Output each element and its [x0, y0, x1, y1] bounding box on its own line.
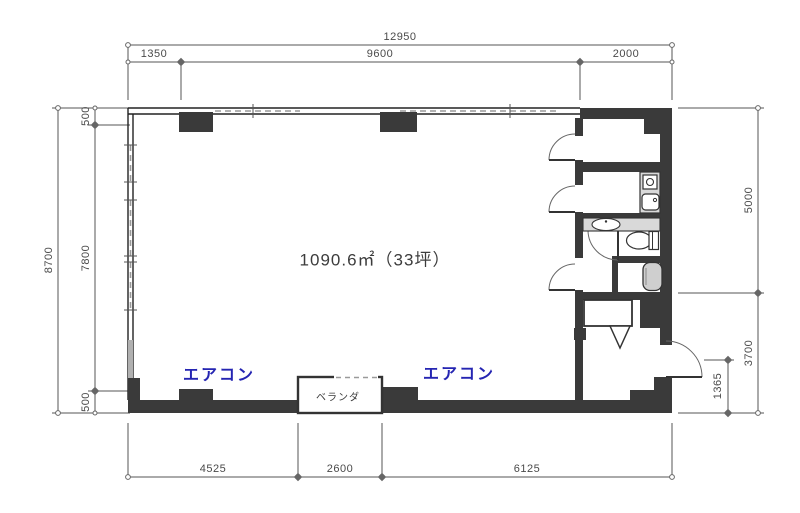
dim-top-total: 12950	[383, 31, 416, 43]
entrance-pillar	[640, 292, 662, 328]
dim-bottom-seg2: 2600	[327, 463, 353, 475]
aircon-label-left: エアコン	[183, 361, 255, 385]
entrance-step-upper	[654, 377, 664, 391]
dim-left-total: 8700	[43, 247, 55, 273]
washbasin-counter	[583, 218, 660, 231]
bottom-pillar-right	[381, 387, 418, 401]
toilet-tank-icon	[649, 232, 659, 250]
bifold-door-icon	[610, 326, 630, 348]
dim-left-seg2: 7800	[80, 245, 92, 271]
entrance-wall-foot	[574, 328, 586, 340]
kitchen-door-arc	[549, 186, 575, 212]
dim-entry-offset: 1365	[712, 373, 724, 399]
bathtub-fixture	[643, 263, 662, 291]
bottom-pillar-left	[179, 389, 213, 401]
floor-area-label: 1090.6㎡（33坪）	[300, 246, 451, 271]
dim-bottom-seg1: 4525	[200, 463, 226, 475]
dim-top-seg1: 1350	[141, 48, 167, 60]
dim-top-seg2: 9600	[367, 48, 393, 60]
kitchen-counter	[640, 172, 660, 213]
kitchen-sink-icon	[642, 194, 659, 210]
aircon-label-right: エアコン	[423, 360, 495, 384]
washroom-door-arc	[549, 264, 575, 290]
dim-right-seg1: 5000	[743, 187, 755, 213]
shoe-closet	[584, 300, 632, 348]
dim-right-seg2: 3700	[743, 340, 755, 366]
top-pillar-right	[380, 112, 417, 132]
toilet-door-arc	[588, 230, 618, 260]
dim-top-seg3: 2000	[613, 48, 639, 60]
dim-left-seg1: 500	[80, 106, 92, 126]
bottom-wall	[128, 400, 672, 413]
dim-bottom-seg3: 6125	[514, 463, 540, 475]
toilet-fixture	[627, 232, 659, 250]
floorplan-page: 12950 1350 9600 2000 8700 500 7800 500 5…	[0, 0, 800, 513]
window-marks	[124, 104, 560, 378]
entrance-door-arc	[666, 341, 702, 377]
dim-left-seg3: 500	[80, 392, 92, 412]
veranda-label: ベランダ	[316, 389, 360, 404]
bottom-left-corner-pillar	[128, 378, 140, 403]
toilet-bowl-icon	[627, 232, 652, 249]
entrance-step-lower	[630, 390, 672, 403]
top-pillar-left	[179, 112, 213, 132]
closet-door-arc	[549, 134, 575, 160]
stove-icon	[643, 175, 657, 189]
